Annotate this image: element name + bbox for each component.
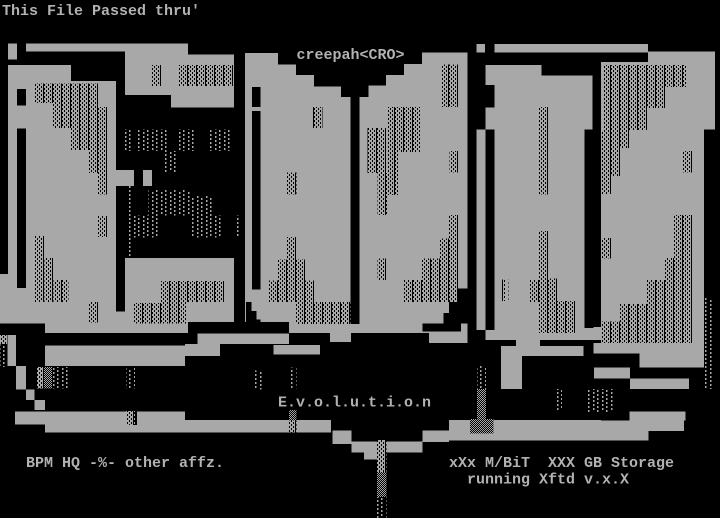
- svg-text:creepah<CRO>: creepah<CRO>: [297, 47, 405, 64]
- svg-text:E.v.o.l.u.t.i.o.n: E.v.o.l.u.t.i.o.n: [278, 395, 431, 412]
- svg-text:BPM HQ -%- other affz.: BPM HQ -%- other affz.: [26, 455, 224, 472]
- svg-text:running Xftd v.x.X: running Xftd v.x.X: [467, 472, 629, 489]
- svg-text:This File Passed thru': This File Passed thru': [2, 3, 200, 20]
- svg-text:xXx M/BiT XXX GB Storage: xXx M/BiT XXX GB Storage: [449, 455, 674, 472]
